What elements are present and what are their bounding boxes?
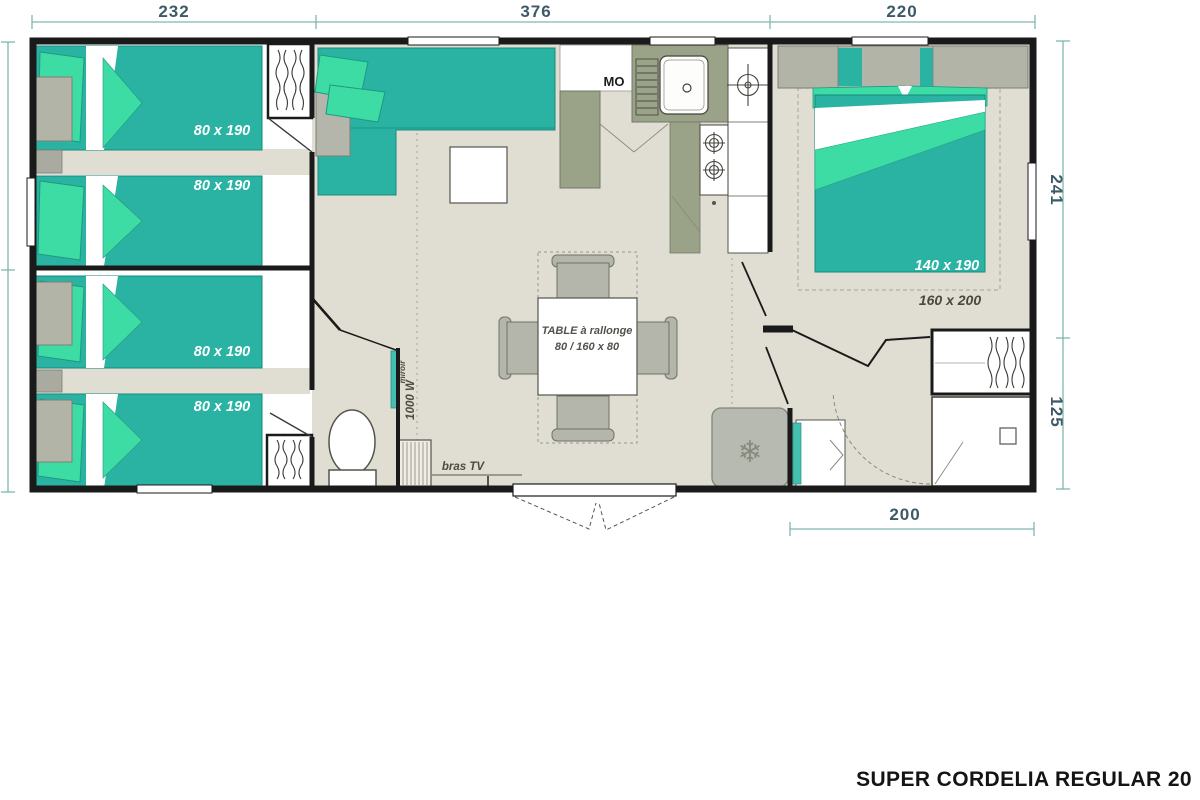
chair [507, 322, 540, 374]
dim-bottom: 200 [889, 505, 920, 524]
kitchen-column [727, 48, 769, 253]
bed-3-size-label: 80 x 190 [194, 344, 250, 360]
entrance-bay-door [513, 484, 676, 530]
chair [552, 429, 614, 441]
bed-4-size-label: 80 x 190 [194, 399, 250, 415]
chair [636, 322, 669, 374]
tv-label: bras TV [442, 461, 486, 473]
floor-plan-page: 80 x 190 80 x 190 [0, 0, 1200, 800]
hob [700, 125, 728, 205]
microwave-label: MO [604, 74, 625, 89]
radiator [399, 440, 431, 487]
coffee-table [450, 147, 507, 203]
window [27, 178, 35, 246]
kitchen-cabinet [560, 91, 600, 188]
bed-2-size-label: 80 x 190 [194, 178, 250, 194]
fridge-unit: ❄ [712, 408, 788, 487]
bathroom-wardrobe [932, 330, 1031, 394]
single-bed-1: 80 x 190 [33, 46, 262, 150]
window [408, 37, 499, 45]
dim-top-middle: 376 [520, 2, 551, 21]
heater-label: 1000 W [405, 379, 417, 420]
shower [932, 397, 1031, 486]
bedside-step [36, 370, 62, 392]
snowflake-icon: ❄ [737, 435, 762, 470]
dim-top-left: 232 [158, 2, 189, 21]
dim-top-right: 220 [886, 2, 917, 21]
chair [557, 396, 609, 432]
double-bed-size-label: 140 x 190 [915, 258, 980, 274]
window [137, 485, 212, 493]
washbasin [793, 420, 845, 487]
dim-right-upper: 241 [1047, 174, 1066, 205]
dim-right-lower: 125 [1047, 396, 1066, 427]
kitchen-counter-return [670, 122, 700, 253]
window [852, 37, 928, 45]
bedside-step [36, 150, 62, 173]
drain [1000, 428, 1016, 444]
single-bed-4: 80 x 190 [33, 394, 262, 488]
double-bed: 140 x 190 [813, 86, 987, 274]
table-label-line1: TABLE à rallonge [542, 325, 633, 337]
bed-option-size-label: 160 x 200 [919, 292, 981, 308]
chair [557, 263, 609, 299]
headboard-cabinets [778, 46, 1028, 88]
model-title: SUPER CORDELIA REGULAR 20 [856, 768, 1192, 791]
single-bed-3: 80 x 190 [33, 276, 262, 368]
toilet [329, 410, 375, 474]
window [1028, 163, 1036, 240]
kitchen-sink [660, 56, 708, 114]
floor-plan: 80 x 190 80 x 190 [0, 0, 1200, 800]
window [650, 37, 715, 45]
bed-1-size-label: 80 x 190 [194, 123, 250, 139]
single-bed-2: 80 x 190 [36, 176, 262, 266]
table-label-line2: 80 / 160 x 80 [555, 341, 620, 353]
